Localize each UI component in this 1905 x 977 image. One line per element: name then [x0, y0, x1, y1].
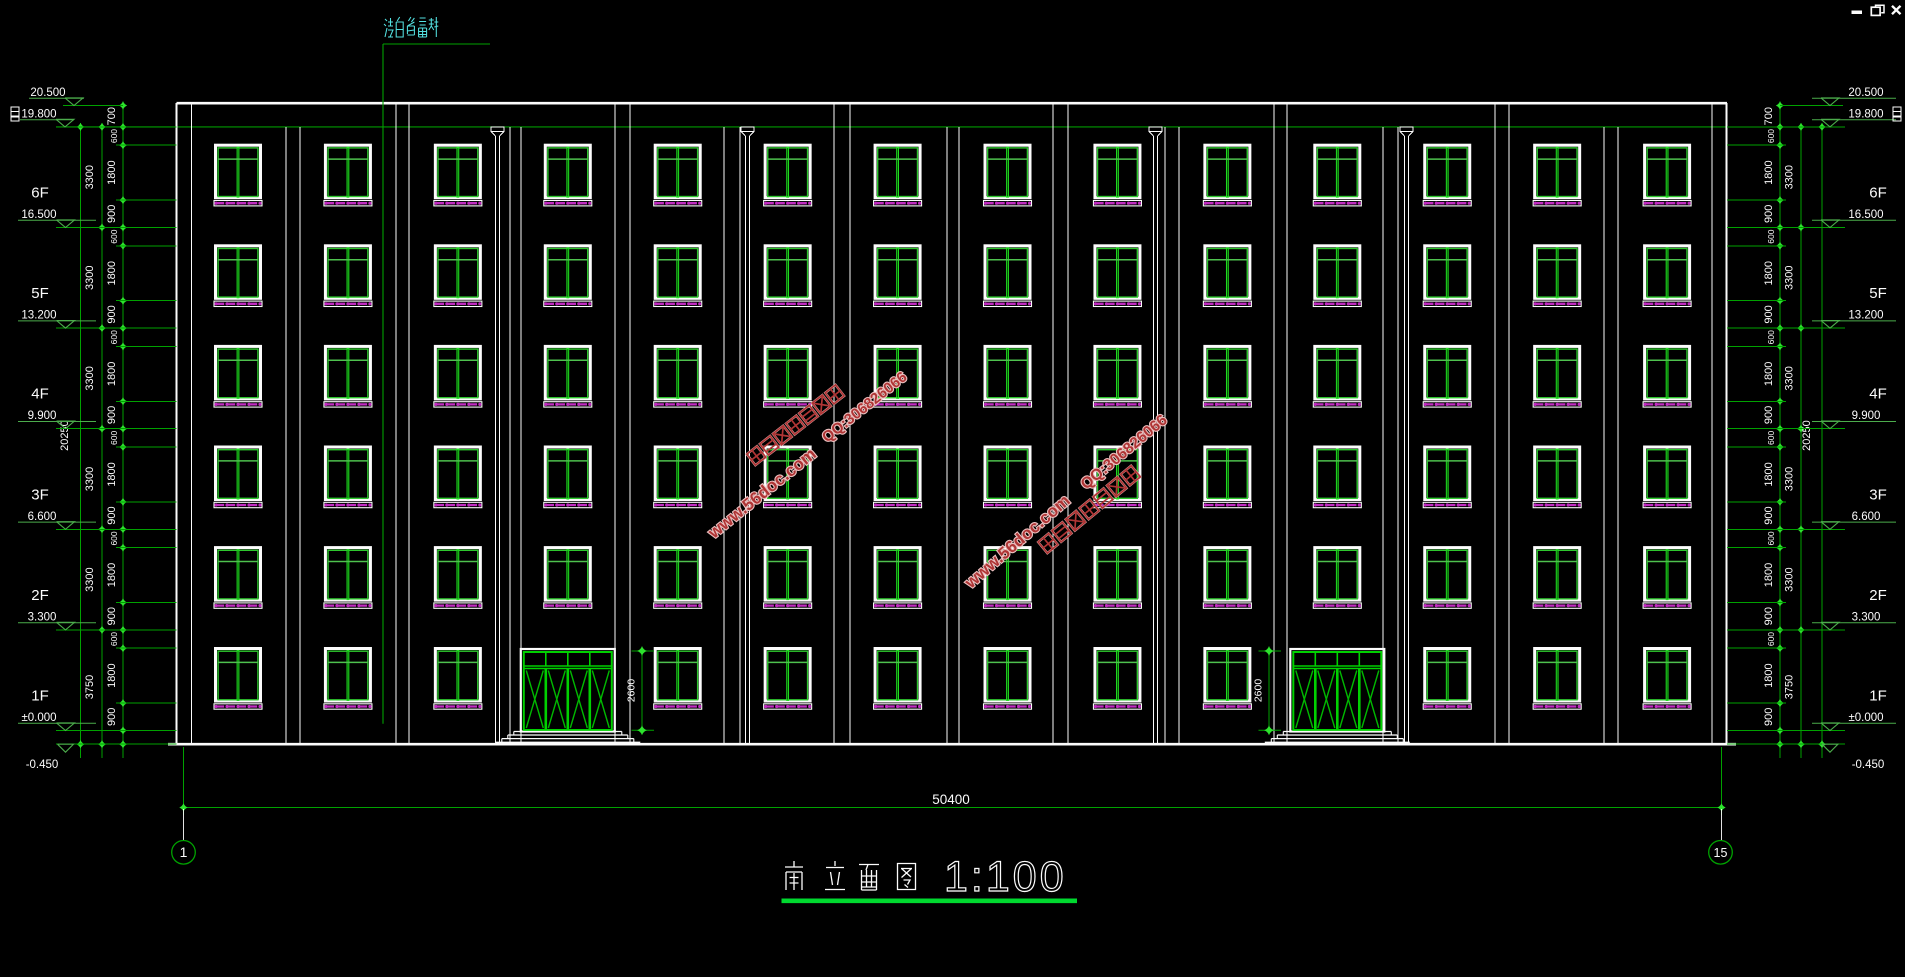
svg-text:3300: 3300 [84, 366, 96, 390]
svg-text:6.600: 6.600 [28, 511, 57, 523]
svg-text:900: 900 [106, 205, 118, 223]
svg-text:900: 900 [1763, 506, 1775, 524]
svg-text:1800: 1800 [1763, 462, 1775, 486]
svg-text:1800: 1800 [106, 563, 118, 587]
svg-text:600: 600 [109, 330, 119, 344]
svg-text:700: 700 [1763, 107, 1775, 125]
svg-text:20250: 20250 [1801, 420, 1813, 451]
svg-text:3300: 3300 [84, 165, 96, 189]
svg-text:3300: 3300 [1784, 266, 1796, 290]
svg-text:3300: 3300 [84, 266, 96, 290]
svg-text:600: 600 [1766, 330, 1776, 344]
svg-text:9.900: 9.900 [1852, 410, 1881, 422]
svg-text:600: 600 [109, 632, 119, 646]
svg-text:1800: 1800 [1763, 663, 1775, 687]
svg-text:3300: 3300 [1784, 165, 1796, 189]
svg-text:1800: 1800 [1763, 261, 1775, 285]
svg-text:13.200: 13.200 [1848, 310, 1883, 322]
svg-text:5F: 5F [1869, 285, 1887, 302]
svg-text:600: 600 [109, 229, 119, 243]
svg-text:3.300: 3.300 [1852, 611, 1881, 623]
svg-text:1800: 1800 [1763, 160, 1775, 184]
svg-text:600: 600 [109, 531, 119, 545]
svg-text:3300: 3300 [84, 567, 96, 591]
svg-text:600: 600 [1766, 632, 1776, 646]
svg-text:20.500: 20.500 [1848, 87, 1883, 99]
svg-text:6F: 6F [31, 185, 49, 202]
svg-text:600: 600 [1766, 430, 1776, 444]
svg-text:±0.000: ±0.000 [1848, 712, 1883, 724]
svg-text:900: 900 [1763, 305, 1775, 323]
svg-text:900: 900 [106, 708, 118, 726]
svg-text:2F: 2F [31, 587, 49, 604]
svg-text:900: 900 [106, 406, 118, 424]
svg-text:13.200: 13.200 [21, 310, 56, 322]
svg-text:4F: 4F [1869, 386, 1887, 403]
svg-text:600: 600 [1766, 229, 1776, 243]
svg-text:-0.450: -0.450 [1852, 759, 1885, 771]
svg-text:1800: 1800 [106, 261, 118, 285]
svg-text:1:100: 1:100 [944, 853, 1067, 901]
svg-text:700: 700 [106, 107, 118, 125]
svg-text:1F: 1F [31, 688, 49, 705]
svg-text:2F: 2F [1869, 587, 1887, 604]
svg-text:5F: 5F [31, 285, 49, 302]
svg-text:-0.450: -0.450 [26, 759, 59, 771]
svg-text:3300: 3300 [1784, 567, 1796, 591]
svg-text:1800: 1800 [1763, 563, 1775, 587]
svg-text:2600: 2600 [626, 679, 638, 703]
svg-text:600: 600 [1766, 531, 1776, 545]
svg-text:3750: 3750 [1784, 675, 1796, 699]
svg-text:3.300: 3.300 [28, 611, 57, 623]
svg-text:3300: 3300 [1784, 366, 1796, 390]
svg-text:3300: 3300 [1784, 467, 1796, 491]
svg-text:3300: 3300 [84, 467, 96, 491]
svg-text:1800: 1800 [106, 462, 118, 486]
svg-text:1800: 1800 [106, 663, 118, 687]
svg-text:20.500: 20.500 [30, 87, 65, 99]
svg-text:1F: 1F [1869, 688, 1887, 705]
svg-text:900: 900 [1763, 607, 1775, 625]
svg-text:6F: 6F [1869, 185, 1887, 202]
svg-text:1: 1 [180, 844, 188, 860]
svg-text:600: 600 [1766, 129, 1776, 143]
svg-text:2600: 2600 [1253, 679, 1265, 703]
svg-text:900: 900 [106, 305, 118, 323]
svg-text:900: 900 [1763, 205, 1775, 223]
svg-text:4F: 4F [31, 386, 49, 403]
svg-text:16.500: 16.500 [21, 209, 56, 221]
svg-text:3F: 3F [31, 486, 49, 503]
svg-text:600: 600 [109, 129, 119, 143]
svg-text:6.600: 6.600 [1852, 511, 1881, 523]
svg-text:600: 600 [109, 430, 119, 444]
svg-text:19.800: 19.800 [1848, 108, 1883, 120]
svg-text:1800: 1800 [106, 362, 118, 386]
svg-text:900: 900 [106, 607, 118, 625]
svg-text:19.800: 19.800 [21, 108, 56, 120]
svg-text:1800: 1800 [1763, 362, 1775, 386]
svg-text:900: 900 [1763, 708, 1775, 726]
svg-text:3750: 3750 [84, 675, 96, 699]
svg-text:50400: 50400 [932, 792, 970, 807]
svg-text:3F: 3F [1869, 486, 1887, 503]
svg-text:16.500: 16.500 [1848, 209, 1883, 221]
svg-text:900: 900 [1763, 406, 1775, 424]
svg-text:900: 900 [106, 506, 118, 524]
svg-text:1800: 1800 [106, 160, 118, 184]
svg-text:±0.000: ±0.000 [21, 712, 56, 724]
svg-text:15: 15 [1714, 846, 1728, 860]
svg-text:9.900: 9.900 [28, 410, 57, 422]
